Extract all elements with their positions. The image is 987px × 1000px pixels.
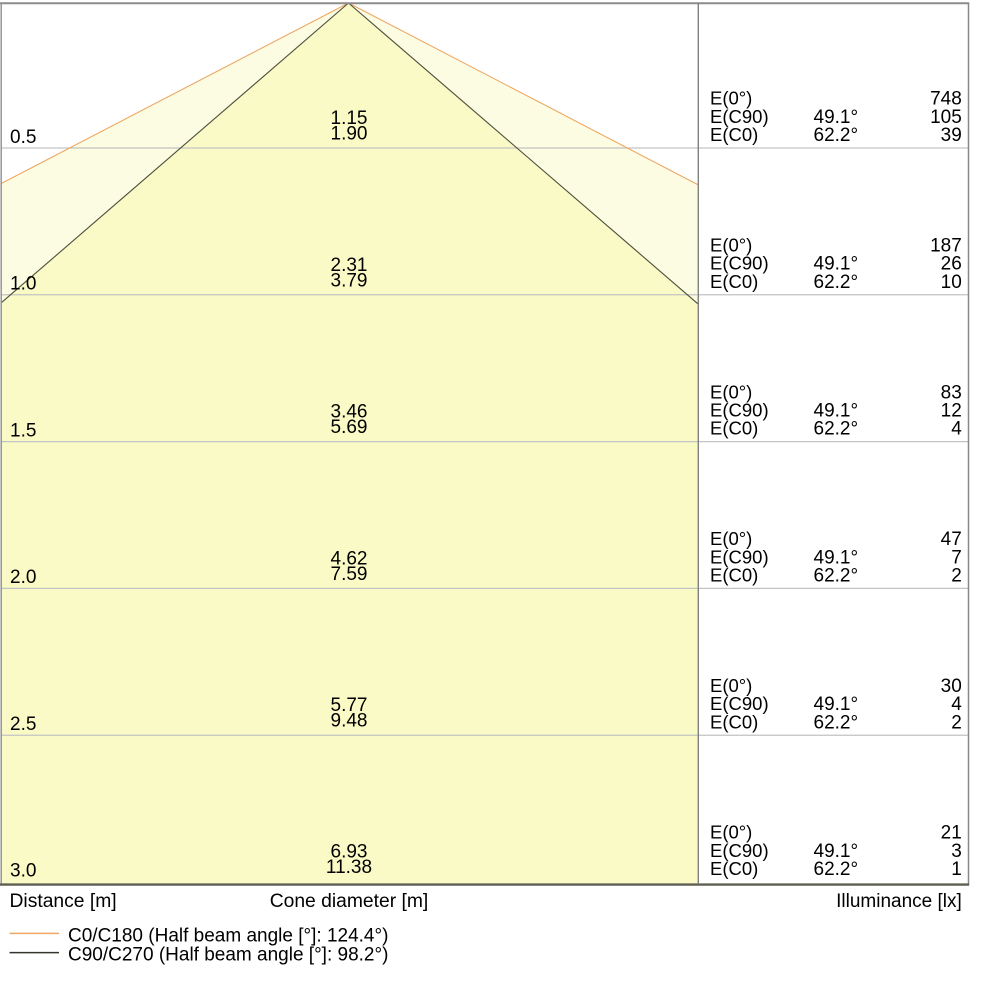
svg-text:2.0: 2.0 <box>10 567 36 588</box>
svg-text:1.0: 1.0 <box>10 274 36 295</box>
svg-text:Distance [m]: Distance [m] <box>10 891 117 912</box>
svg-text:E(C0): E(C0) <box>710 124 758 145</box>
svg-text:2.5: 2.5 <box>10 714 36 735</box>
svg-text:62.2°: 62.2° <box>814 419 859 440</box>
svg-text:1.5: 1.5 <box>10 420 36 441</box>
svg-text:3.0: 3.0 <box>10 861 36 882</box>
svg-text:E(C0): E(C0) <box>710 271 758 292</box>
svg-text:2: 2 <box>951 712 962 733</box>
svg-text:4: 4 <box>951 419 962 440</box>
svg-text:C90/C270 (Half beam angle [°]:: C90/C270 (Half beam angle [°]: 98.2°) <box>68 945 388 966</box>
svg-text:E(C0): E(C0) <box>710 711 758 732</box>
svg-text:11.38: 11.38 <box>326 857 372 878</box>
svg-text:39: 39 <box>941 125 962 146</box>
svg-text:Cone diameter [m]: Cone diameter [m] <box>270 891 429 912</box>
svg-text:2: 2 <box>951 566 962 587</box>
svg-text:62.2°: 62.2° <box>814 712 859 733</box>
svg-text:E(C0): E(C0) <box>710 858 758 879</box>
svg-text:62.2°: 62.2° <box>814 566 859 587</box>
svg-text:62.2°: 62.2° <box>814 859 859 880</box>
svg-text:9.48: 9.48 <box>331 711 368 732</box>
svg-text:3.79: 3.79 <box>331 270 368 291</box>
svg-text:0.5: 0.5 <box>10 127 36 148</box>
svg-text:10: 10 <box>941 272 962 293</box>
svg-text:62.2°: 62.2° <box>814 125 859 146</box>
svg-text:1.90: 1.90 <box>331 124 368 145</box>
svg-text:1: 1 <box>951 859 962 880</box>
svg-text:7.59: 7.59 <box>331 564 368 585</box>
svg-text:C0/C180 (Half beam angle [°]:: C0/C180 (Half beam angle [°]: 124.4°) <box>68 926 388 947</box>
svg-text:5.69: 5.69 <box>331 417 368 438</box>
svg-text:E(C0): E(C0) <box>710 418 758 439</box>
svg-text:E(C0): E(C0) <box>710 565 758 586</box>
svg-text:Illuminance [lx]: Illuminance [lx] <box>836 891 962 912</box>
svg-text:62.2°: 62.2° <box>814 272 859 293</box>
